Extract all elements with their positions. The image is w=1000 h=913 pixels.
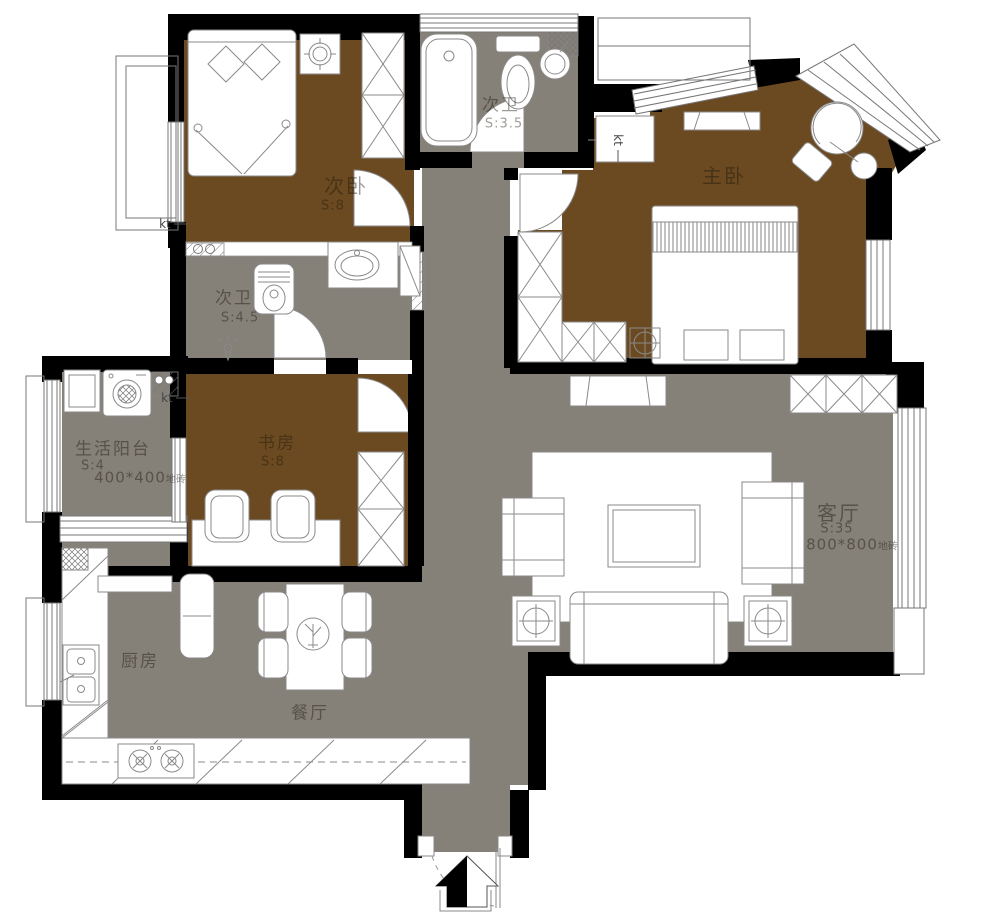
tile-unit: 地砖 [878,542,898,553]
label-dining-room: 餐厅 [291,706,329,723]
label-bathroom-top-area: S:3.5 [485,118,523,131]
label-service-balcony-tile: 400*400地砖 [94,471,186,486]
label-study: 书房 [258,436,296,453]
window-balcony-left [26,376,60,522]
north-arrow [436,856,498,911]
armchair-left [502,498,564,576]
label-bathroom-top: 次卫 [482,98,520,115]
wardrobe-master-left [518,232,562,362]
window-master-right [866,240,890,330]
label-living-room-area: S:35 [820,523,853,536]
nightstand-lamp [300,34,340,74]
wardrobe-study [358,452,404,566]
kitchen-sink-double [60,645,99,705]
label-kt-master: kt [612,134,624,146]
label-bathroom-mid-area: S:4.5 [221,312,259,325]
window-kitchen-left [26,598,60,706]
tv-cabinet [790,375,897,413]
washing-machine [103,370,151,416]
side-table-lamp-left [512,596,560,646]
console-table [570,376,666,406]
label-kt-upper: kt [159,218,171,230]
window-bath-top [420,14,578,32]
floor-plan: 次卧 S:8 次卫 S:3.5 主卧 次卫 S:4.5 书房 S:8 生活阳台 … [0,0,1000,913]
window-balcony-bottom [60,516,187,542]
label-secondary-bedroom: 次卧 [324,176,368,196]
squat-toilet [254,264,294,314]
label-service-balcony: 生活阳台 [75,442,151,459]
chair-study-1 [205,490,249,542]
side-table-lamp-right [744,596,792,646]
window-living-right [894,408,926,674]
laundry-sink [64,370,100,412]
sink-counter-mid [328,242,398,288]
tile-size: 400*400 [94,469,166,487]
stove [118,744,194,778]
chair-study-2 [271,490,315,542]
label-kitchen: 厨房 [121,654,159,671]
tile-unit: 地砖 [166,475,186,486]
wardrobe-secondary [362,33,404,158]
bathtub [421,34,477,146]
loveseat-right [742,482,804,584]
label-master-bedroom: 主卧 [702,166,746,186]
dining-table [286,584,344,690]
label-kt-balcony: kt [161,392,173,404]
fridge [180,574,214,658]
kitchen-counter-top [98,576,172,592]
label-bathroom-mid: 次卫 [215,291,253,308]
bed-secondary [188,30,296,176]
wardrobe-master-bottom [562,322,626,362]
bed-master [652,206,798,364]
label-living-room: 客厅 [817,503,861,523]
label-study-area: S:8 [261,456,285,469]
label-secondary-bedroom-area: S:8 [321,200,345,213]
sofa [570,592,728,664]
tall-cabinet-mid [400,246,420,296]
coffee-table [608,505,700,567]
label-living-room-tile: 800*800地砖 [806,538,898,553]
tile-size: 800*800 [806,536,878,554]
dresser-master [684,112,760,130]
roof-terrace-outline [598,18,750,80]
